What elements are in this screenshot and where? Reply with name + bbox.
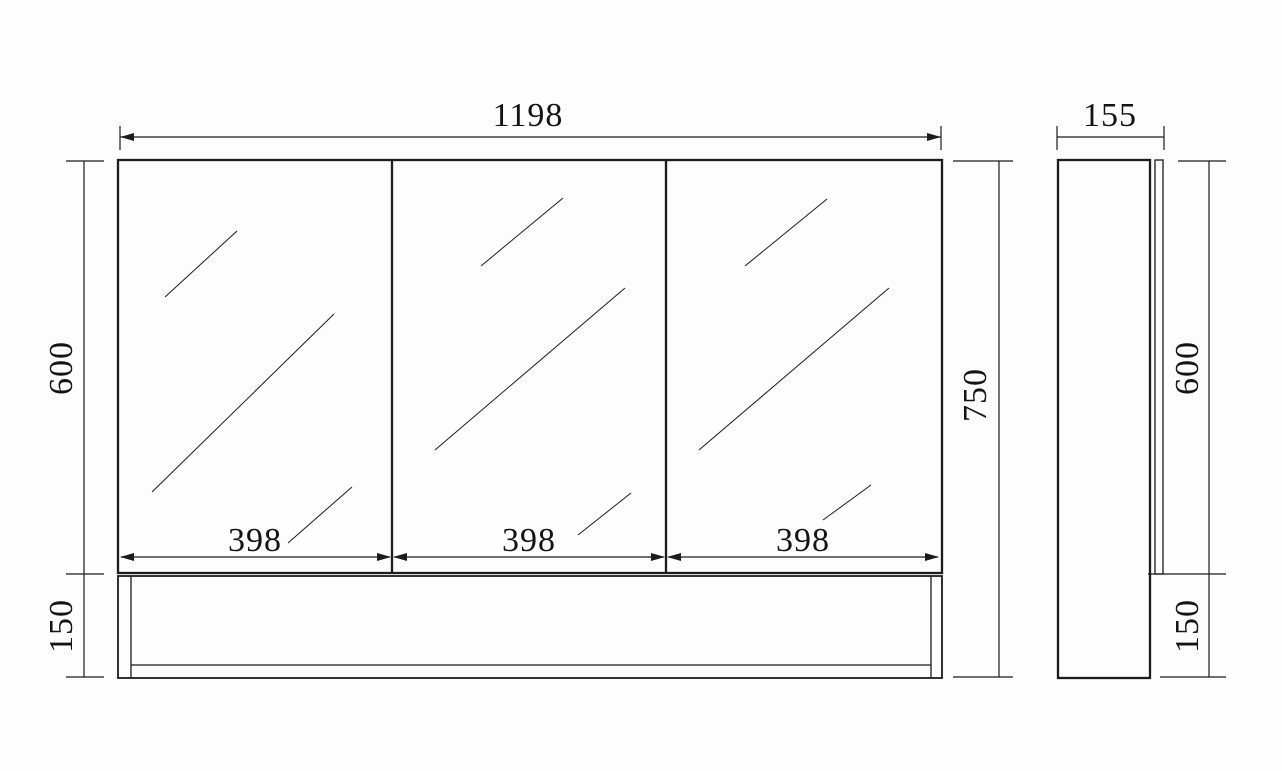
shelf-outline: [118, 576, 942, 678]
dim-shelf-height-left: 150: [43, 574, 104, 677]
mirror-hatch-line: [578, 493, 631, 535]
dim-arrow-left: [120, 133, 134, 141]
mirror-hatch-line: [481, 198, 563, 266]
dim-mirror-height-left: 600: [43, 161, 104, 574]
dim-label-shelf-height: 150: [43, 599, 80, 653]
mirror-hatch-line: [152, 314, 334, 492]
dim-arrow-left: [667, 553, 681, 561]
side-body-outline: [1058, 160, 1150, 678]
dim-mirror-height-right: 600: [1148, 161, 1226, 574]
dim-arrow-right: [925, 553, 939, 561]
front-doors-outline: [118, 160, 942, 573]
mirror-hatch-line: [699, 288, 889, 450]
dim-door-1-width: 398: [120, 522, 391, 561]
dim-label-mirror-height: 600: [43, 341, 80, 395]
dim-label-shelf-height: 150: [1169, 599, 1206, 653]
front-view: 1198 600 150 750 398: [43, 97, 1013, 678]
mirror-hatch-line: [435, 288, 625, 450]
dim-door-3-width: 398: [667, 522, 939, 561]
mirror-hatch-line: [823, 485, 871, 520]
mirror-hatch-line: [288, 487, 352, 543]
dim-depth: 155: [1057, 97, 1164, 150]
technical-drawing-canvas: 1198 600 150 750 398: [0, 0, 1282, 771]
side-view: 155 600 150: [1057, 97, 1226, 678]
side-door-panel-strip: [1155, 160, 1163, 574]
mirror-hatch-line: [745, 199, 827, 266]
dim-arrow-left: [120, 553, 134, 561]
dim-overall-width: 1198: [120, 97, 941, 150]
dim-arrow-right: [651, 553, 665, 561]
dim-label-depth: 155: [1083, 97, 1137, 134]
dim-label-mirror-height: 600: [1169, 341, 1206, 395]
dim-arrow-right: [927, 133, 941, 141]
dim-label-total-height: 750: [957, 368, 994, 422]
dim-arrow-left: [393, 553, 407, 561]
drawing-sheet: 1198 600 150 750 398: [0, 0, 1282, 771]
dim-label-door-width: 398: [776, 522, 830, 559]
dim-total-height: 750: [953, 161, 1013, 677]
dim-label-door-width: 398: [228, 522, 282, 559]
dim-label-overall-width: 1198: [493, 97, 564, 134]
mirror-hatch-line: [165, 231, 237, 297]
dim-label-door-width: 398: [502, 522, 556, 559]
dim-shelf-height-right: 150: [1160, 574, 1226, 677]
dim-arrow-right: [377, 553, 391, 561]
dim-door-2-width: 398: [393, 522, 665, 561]
